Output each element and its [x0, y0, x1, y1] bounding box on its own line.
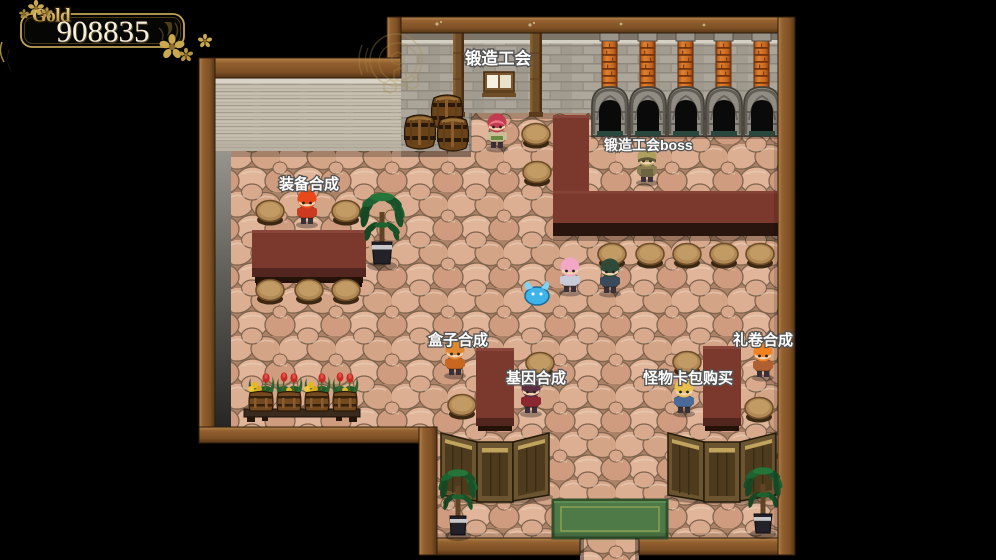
svg-text:礼卷合成: 礼卷合成	[733, 331, 793, 349]
svg-text:盒子合成: 盒子合成	[427, 331, 488, 349]
svg-text:基因合成: 基因合成	[505, 369, 566, 387]
svg-text:怪物卡包购买: 怪物卡包购买	[643, 369, 733, 387]
svg-text:装备合成: 装备合成	[278, 175, 339, 193]
svg-text:锻造工会boss: 锻造工会boss	[604, 137, 693, 153]
svg-text:908835: 908835	[57, 14, 150, 49]
svg-text:锻造工会: 锻造工会	[465, 48, 532, 68]
